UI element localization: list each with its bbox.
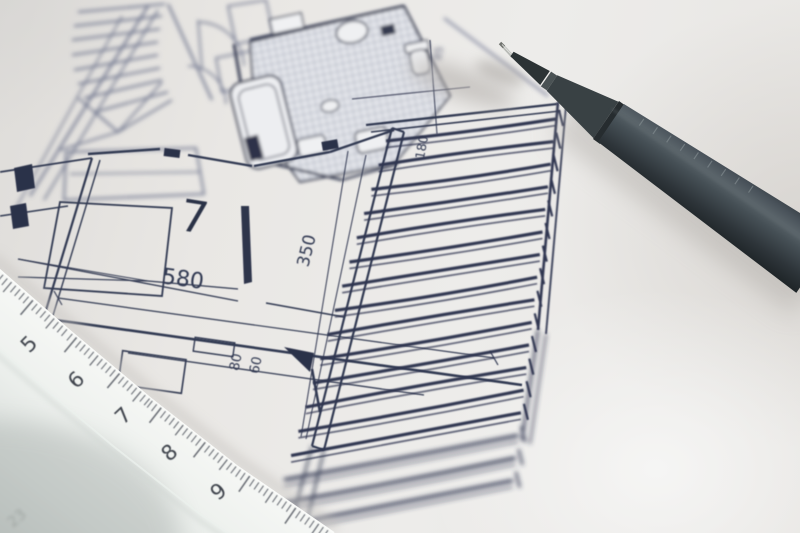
dimension-85: 85 [431, 45, 446, 61]
wall-section [241, 206, 252, 284]
deck-plank-gap [364, 193, 548, 220]
stair-winder-line [118, 100, 172, 132]
pen-barrel [598, 104, 800, 293]
deck-fascia [530, 334, 546, 444]
stair-winder-line [95, 112, 118, 132]
room-number: 7 [176, 190, 212, 245]
stair-step [72, 42, 158, 55]
deck-plank-end [516, 472, 520, 488]
dimension-350: 350 [294, 233, 321, 269]
deck-plank-gap [357, 216, 545, 244]
landing-line [70, 172, 200, 174]
wall-line [168, 4, 212, 100]
stair-step [72, 29, 160, 40]
deck-plank [364, 187, 548, 214]
deck-plank [357, 209, 545, 237]
photo-desk-scene: 7 580 350 80 60 180 85 5 6 7 8 9 23 [0, 0, 800, 533]
dimension-580: 580 [160, 264, 205, 295]
deck-plank-gap [350, 239, 543, 269]
stair-step [78, 4, 165, 12]
scene-canvas: 7 580 350 80 60 180 85 5 6 7 8 9 23 [0, 0, 800, 533]
deck-plank [328, 300, 535, 335]
deck-plank-gap [313, 352, 529, 390]
deck-plank-end [519, 449, 523, 465]
door-leaf [198, 20, 202, 70]
